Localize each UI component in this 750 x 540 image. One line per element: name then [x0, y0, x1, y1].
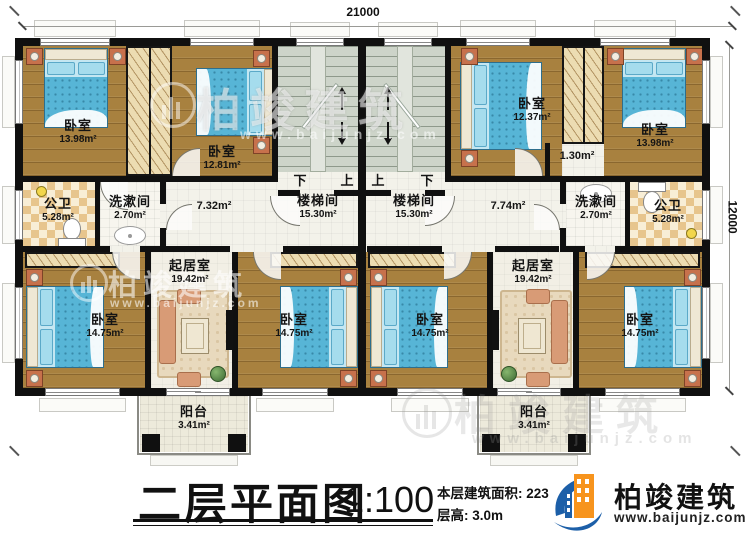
window-bay	[290, 22, 350, 37]
nightstand	[684, 269, 701, 286]
bed-headboard	[623, 49, 685, 60]
window-bay	[599, 398, 686, 412]
floor-plan-sheet: 21000 12000	[0, 0, 750, 540]
nightstand	[370, 269, 387, 286]
planter	[490, 455, 578, 466]
sofa	[159, 300, 176, 364]
window	[702, 190, 710, 240]
room-label: 起居室19.42m²	[512, 258, 554, 287]
window-bay	[710, 56, 723, 128]
window-bay	[2, 186, 15, 244]
corner-mark	[730, 446, 740, 456]
nightstand	[253, 50, 270, 67]
wall	[445, 46, 451, 182]
room-label: 阳台3.41m²	[518, 404, 550, 433]
nightstand	[340, 269, 357, 286]
window-bay	[184, 20, 260, 37]
stair-direction-arrow	[387, 90, 389, 110]
wall	[160, 228, 166, 248]
stair-direction-arrow	[341, 122, 343, 142]
armchair	[526, 372, 550, 387]
room-label: 公卫5.28m²	[42, 196, 74, 225]
room-label: 起居室19.42m²	[169, 258, 211, 287]
nightstand	[370, 370, 387, 387]
balcony-sliding-door	[166, 388, 230, 396]
nightstand	[461, 150, 478, 167]
window	[262, 388, 328, 396]
bed-headboard	[371, 287, 382, 367]
balcony-pillar	[228, 434, 246, 452]
window-bay	[391, 398, 469, 412]
title-underline	[133, 525, 433, 526]
window-bay	[460, 20, 536, 37]
bed	[196, 68, 276, 136]
bed-headboard	[45, 49, 107, 60]
coffee-table	[518, 318, 546, 354]
bed-headboard	[346, 287, 357, 367]
bed-headboard	[27, 287, 38, 367]
window	[15, 287, 23, 359]
drawing-scale: 1:100	[344, 479, 434, 521]
window-bay	[710, 186, 723, 244]
wall	[495, 246, 559, 252]
coffee-table	[181, 318, 209, 354]
plant	[501, 366, 517, 382]
bed-pillows	[472, 63, 489, 149]
bed-pillows	[247, 69, 264, 135]
window-bay	[710, 283, 723, 363]
wardrobe-closet	[126, 46, 172, 176]
room-label: 卧室13.98m²	[59, 118, 96, 147]
brand-url: www.baijunjz.com	[614, 510, 747, 525]
armchair	[526, 289, 550, 304]
wardrobe-closet	[270, 252, 358, 268]
window	[45, 388, 120, 396]
room-label: 卧室14.75m²	[621, 312, 658, 341]
tv	[226, 310, 233, 350]
nightstand	[26, 269, 43, 286]
dimension-top-label: 21000	[346, 5, 379, 19]
bed-pillows	[329, 287, 346, 367]
sofa	[551, 300, 568, 364]
window-bay	[2, 56, 15, 128]
window	[296, 38, 344, 46]
nightstand	[461, 48, 478, 65]
nightstand	[26, 370, 43, 387]
armchair	[177, 372, 201, 387]
wall	[545, 143, 550, 178]
wall	[573, 252, 579, 388]
stair-direction-arrow	[387, 122, 389, 142]
window-bay	[378, 22, 438, 37]
nightstand	[26, 48, 43, 65]
stair-down-label: 下	[293, 170, 306, 189]
floor-height-text: 层高: 3.0m	[437, 504, 503, 524]
window	[190, 38, 254, 46]
wall	[358, 38, 366, 396]
room-label: 卧室12.81m²	[203, 144, 240, 173]
window	[600, 38, 670, 46]
room-label: 公卫5.28m²	[652, 198, 684, 227]
window	[384, 38, 432, 46]
armchair	[177, 289, 201, 304]
title-underline	[133, 519, 433, 522]
room-label: 阳台3.41m²	[178, 404, 210, 433]
window	[15, 190, 23, 240]
room-label: 卧室14.75m²	[86, 312, 123, 341]
balcony-pillar	[142, 434, 160, 452]
room-label: 卧室14.75m²	[411, 312, 448, 341]
room-label: 楼梯间15.30m²	[297, 193, 339, 222]
bed-mattress	[197, 69, 247, 135]
stair-up-label: 上	[371, 170, 384, 189]
wall	[145, 252, 151, 388]
dimension-top-line	[22, 26, 733, 27]
window	[40, 38, 110, 46]
bed-pillows	[45, 60, 107, 77]
drawing-title: 二层平面图	[138, 470, 368, 532]
wall	[366, 190, 391, 196]
bed-pillows	[623, 60, 685, 77]
corner-mark	[9, 6, 19, 16]
window-bay	[256, 398, 334, 412]
window-bay	[2, 283, 15, 363]
window-bay	[39, 398, 126, 412]
room-label: 洗漱间2.70m²	[109, 194, 151, 223]
bed	[44, 48, 108, 128]
wall	[95, 182, 100, 246]
window-bay	[34, 20, 116, 37]
wall	[560, 228, 566, 248]
room-label: 洗漱间2.70m²	[575, 194, 617, 223]
balcony-pillar	[568, 434, 586, 452]
ceiling-lamp	[686, 228, 697, 239]
window	[466, 38, 530, 46]
wall	[23, 246, 110, 252]
stair-direction-arrow	[341, 90, 343, 110]
wall	[160, 182, 166, 204]
stair-up-label: 上	[340, 170, 353, 189]
window	[702, 287, 710, 359]
stair-down-label: 下	[420, 170, 433, 189]
bed-mattress	[623, 77, 685, 127]
wall	[23, 176, 272, 182]
nightstand	[253, 137, 270, 154]
corner-mark	[730, 6, 740, 16]
wall	[272, 46, 278, 182]
balcony-pillar	[482, 434, 500, 452]
corner-mark	[9, 446, 19, 456]
nightstand	[109, 48, 126, 65]
room-label: 卧室13.98m²	[636, 122, 673, 151]
room-label: 1.30m²	[560, 150, 595, 164]
balcony-sliding-door	[497, 388, 561, 396]
nightstand	[686, 48, 703, 65]
floor-area-text: 本层建筑面积: 223	[437, 482, 549, 502]
wardrobe-closet	[368, 252, 456, 268]
wall	[451, 176, 702, 182]
wall	[283, 246, 358, 252]
room-label: 7.32m²	[197, 200, 232, 214]
tv	[492, 310, 499, 350]
window-bay	[594, 20, 676, 37]
bed-pillows	[382, 287, 399, 367]
bed-pillows	[38, 287, 55, 367]
room-label: 7.74m²	[491, 200, 526, 214]
room-label: 卧室14.75m²	[275, 312, 312, 341]
wall	[367, 246, 442, 252]
room-label: 楼梯间15.30m²	[393, 193, 435, 222]
room-label: 卧室12.37m²	[513, 96, 550, 125]
bed-pillows	[673, 287, 690, 367]
window	[397, 388, 463, 396]
wall	[140, 246, 166, 252]
window	[702, 60, 710, 124]
wall	[615, 246, 702, 252]
bed-headboard	[690, 287, 701, 367]
bed	[622, 48, 686, 128]
bed-headboard	[461, 63, 472, 149]
nightstand	[340, 370, 357, 387]
window	[15, 60, 23, 124]
wardrobe-closet	[562, 46, 604, 144]
planter	[150, 455, 238, 466]
window	[605, 388, 680, 396]
wardrobe-closet	[25, 252, 120, 268]
wall	[166, 246, 230, 252]
wall	[625, 182, 630, 246]
brand-logo-icon	[544, 466, 612, 536]
nightstand	[607, 48, 624, 65]
wall	[560, 182, 566, 204]
nightstand	[684, 370, 701, 387]
plant	[210, 366, 226, 382]
sink	[114, 226, 146, 245]
dimension-right-label: 12000	[726, 200, 740, 233]
